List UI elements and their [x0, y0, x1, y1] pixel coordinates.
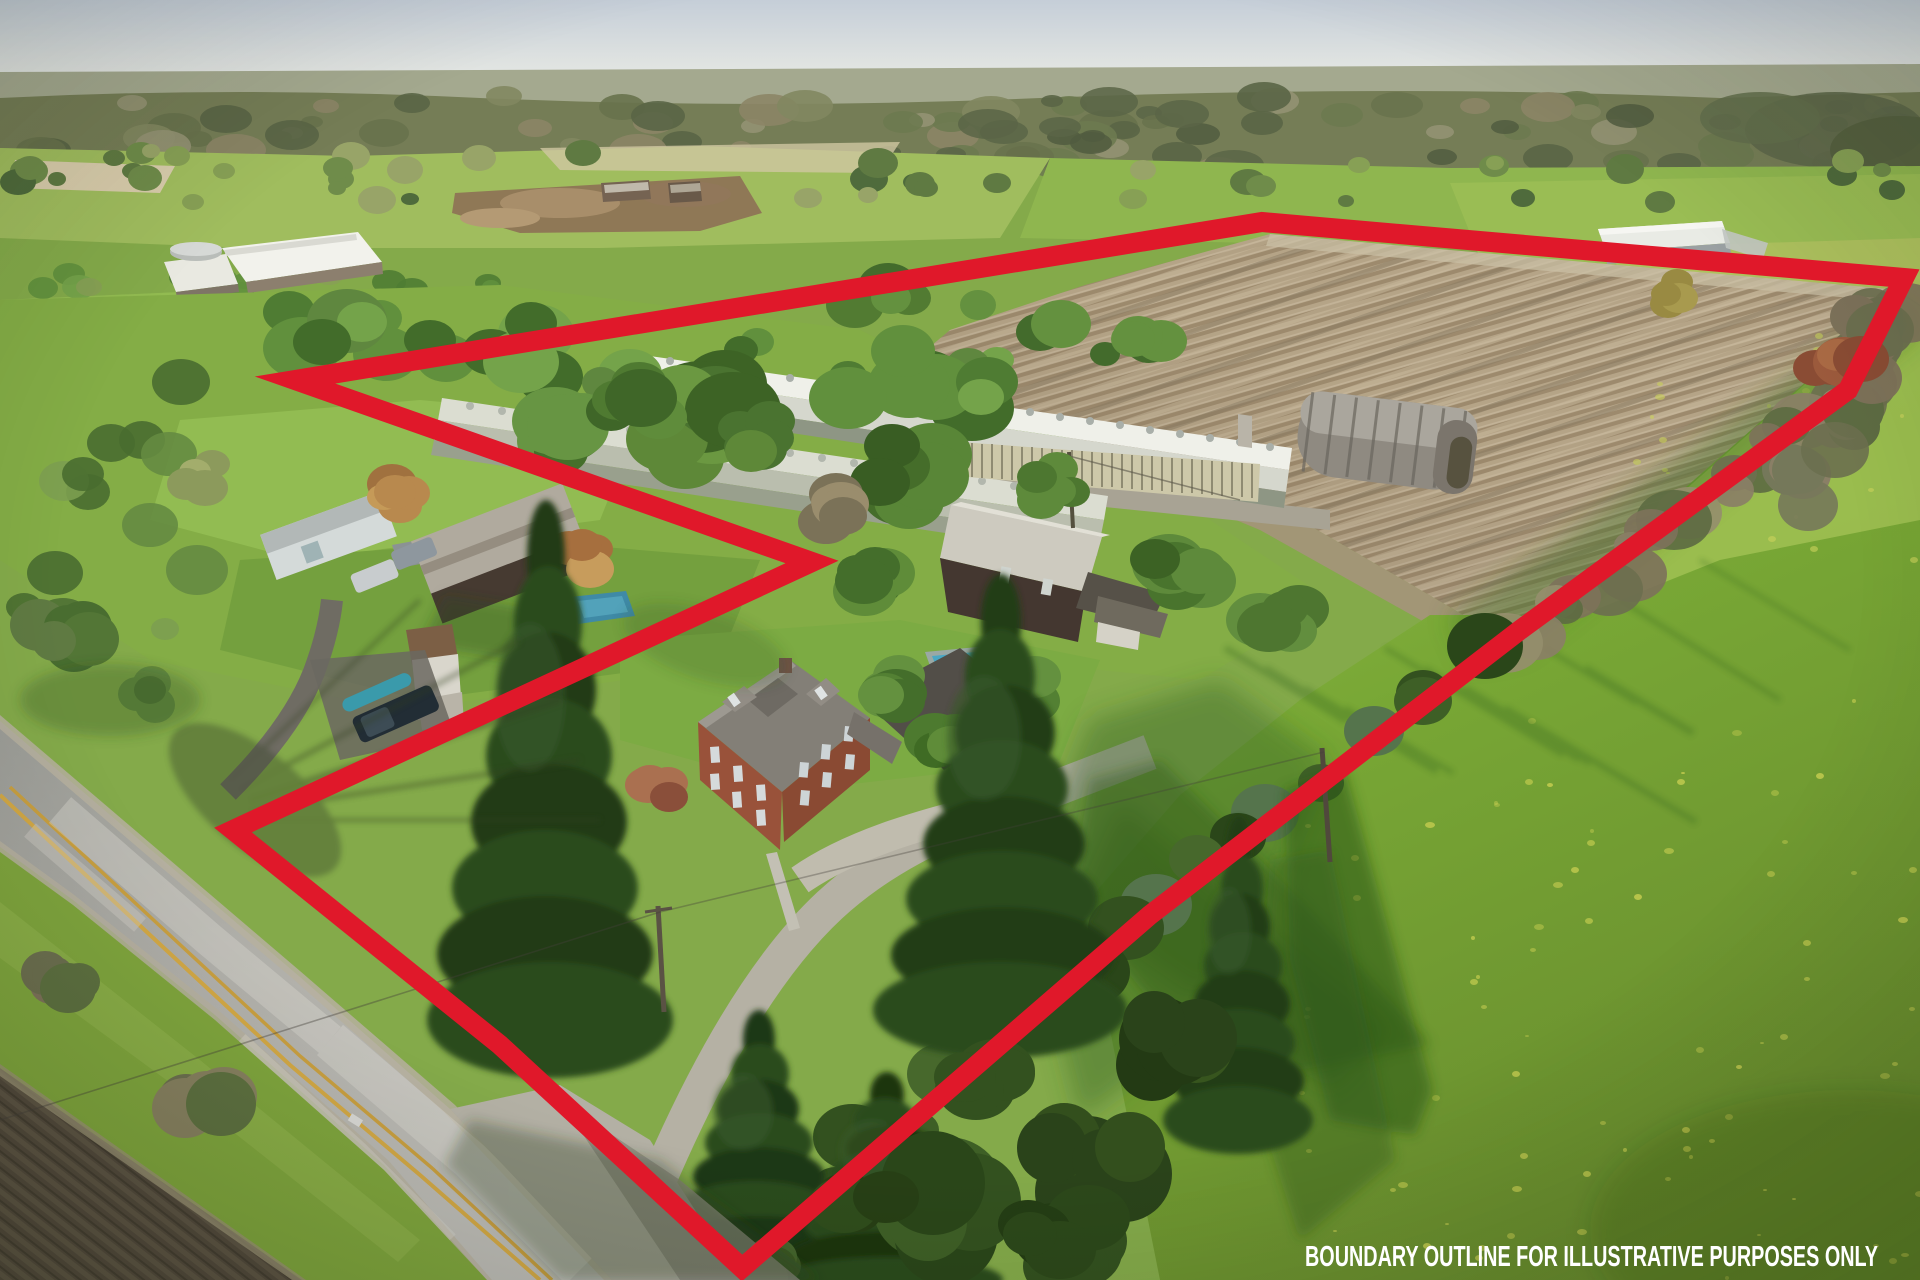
svg-text:BOUNDARY OUTLINE FOR ILLUSTRAT: BOUNDARY OUTLINE FOR ILLUSTRATIVE PURPOS… — [1305, 1241, 1878, 1273]
